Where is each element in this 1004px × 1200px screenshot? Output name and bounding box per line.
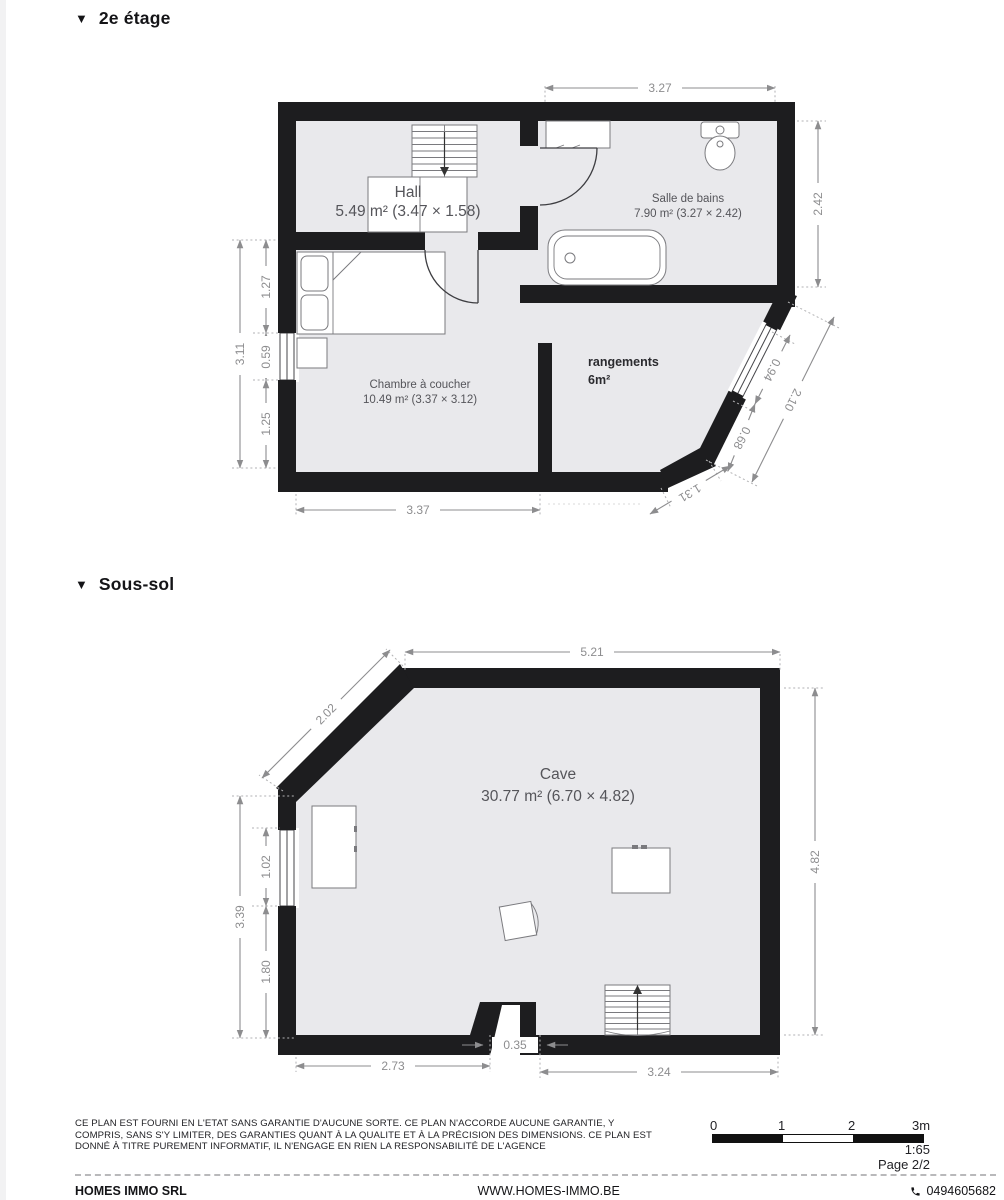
nightstand-icon: [297, 338, 327, 368]
disclaimer-line: DONNÉ À TITRE PUREMENT INFORMATIF, IL N'…: [75, 1141, 685, 1153]
svg-text:rangements: rangements: [588, 355, 659, 369]
dimension-left-b: 1.80: [258, 906, 274, 1038]
scale-tick-1: 1: [778, 1118, 785, 1133]
floorplan-2e-etage: 3.27 2.42 3.11 1.27: [232, 80, 841, 518]
svg-text:1.02: 1.02: [259, 855, 273, 879]
svg-text:2.73: 2.73: [381, 1059, 405, 1073]
svg-text:Hall: Hall: [395, 184, 422, 201]
svg-text:5.21: 5.21: [580, 645, 604, 659]
scale-bar: 0 1 2 3m: [712, 1118, 930, 1143]
floorplan-page: ▼ 2e étage ▼ Sous-sol: [0, 0, 1004, 1200]
svg-text:3.11: 3.11: [233, 342, 247, 365]
svg-text:5.49 m² (3.47 × 1.58): 5.49 m² (3.47 × 1.58): [335, 203, 480, 220]
svg-text:6m²: 6m²: [588, 373, 610, 387]
dimension-left-a: 1.27: [258, 240, 274, 333]
floorplan-canvas: 3.27 2.42 3.11 1.27: [0, 0, 1004, 1200]
svg-text:1.80: 1.80: [259, 960, 273, 984]
svg-text:7.90 m² (3.27 × 2.42): 7.90 m² (3.27 × 2.42): [634, 208, 742, 220]
shelf-icon: [312, 806, 357, 888]
dimension-left-a: 1.02: [258, 828, 274, 906]
svg-text:10.49 m² (3.37 × 3.12): 10.49 m² (3.37 × 3.12): [363, 394, 477, 406]
dimension-top: 3.27: [545, 80, 775, 96]
disclaimer-line: CE PLAN EST FOURNI EN L'ETAT SANS GARANT…: [75, 1118, 685, 1130]
scale-tick-0: 0: [710, 1118, 717, 1133]
scale-segment-black: [853, 1135, 923, 1142]
phone-number[interactable]: 0494605682: [910, 1184, 996, 1198]
scale-segment-black: [713, 1135, 783, 1142]
svg-text:1.27: 1.27: [259, 275, 273, 299]
dimension-top: 5.21: [405, 644, 780, 660]
footer-row: HOMES IMMO SRL WWW.HOMES-IMMO.BE 0494605…: [75, 1184, 996, 1198]
footer-divider: [75, 1174, 996, 1176]
scale-ratio: 1:65: [712, 1142, 930, 1157]
washer-icon: [612, 845, 670, 893]
svg-text:3.39: 3.39: [233, 905, 247, 929]
dimension-right: 2.42: [810, 121, 826, 287]
dimension-right: 4.82: [807, 688, 823, 1035]
dimension-left-c: 1.25: [258, 380, 274, 468]
scale-tick-3m: 3m: [912, 1118, 930, 1133]
floorplan-sous-sol: 5.21 2.02 4.82 3.39: [232, 644, 824, 1080]
scale-tick-2: 2: [848, 1118, 855, 1133]
phone-icon: [910, 1186, 921, 1197]
website-link[interactable]: WWW.HOMES-IMMO.BE: [477, 1184, 619, 1198]
window-icon: [275, 828, 299, 908]
scale-meta: 1:65 Page 2/2: [712, 1142, 930, 1172]
disclaimer-text: CE PLAN EST FOURNI EN L'ETAT SANS GARANT…: [75, 1118, 685, 1153]
scale-tick-labels: 0 1 2 3m: [712, 1118, 930, 1132]
svg-text:3.24: 3.24: [647, 1065, 671, 1079]
svg-text:2.42: 2.42: [811, 192, 825, 216]
bathtub-icon: [548, 230, 666, 285]
dimension-left-total: 3.39: [232, 796, 248, 1038]
svg-text:3.27: 3.27: [648, 81, 672, 95]
svg-text:0.35: 0.35: [503, 1038, 527, 1052]
scale-segment-white: [783, 1135, 853, 1142]
sink-icon: [546, 121, 610, 148]
phone-number-text: 0494605682: [926, 1184, 996, 1198]
floor-area: [296, 688, 760, 1035]
svg-text:Cave: Cave: [540, 766, 576, 783]
dimension-bottom-a: 2.73: [296, 1058, 490, 1074]
company-name: HOMES IMMO SRL: [75, 1184, 187, 1198]
svg-text:4.82: 4.82: [808, 850, 822, 874]
page-indicator: Page 2/2: [712, 1157, 930, 1172]
dimension-left-b: 0.59: [258, 333, 274, 380]
svg-text:Salle de bains: Salle de bains: [652, 193, 724, 205]
disclaimer-line: COMPRIS, SANS S'Y LIMITER, DES GARANTIES…: [75, 1130, 685, 1142]
svg-text:30.77 m² (6.70 × 4.82): 30.77 m² (6.70 × 4.82): [481, 788, 635, 805]
dimension-bottom-b: 3.24: [540, 1064, 778, 1080]
svg-text:Chambre à coucher: Chambre à coucher: [370, 379, 471, 391]
dimension-bottom: 3.37: [296, 502, 540, 518]
svg-text:1.25: 1.25: [259, 412, 273, 436]
window-icon: [275, 331, 299, 382]
stairs-icon: [605, 985, 670, 1036]
svg-text:0.59: 0.59: [259, 345, 273, 369]
svg-text:3.37: 3.37: [406, 503, 430, 517]
dimension-left-total: 3.11: [232, 240, 248, 468]
bed-icon: [297, 252, 445, 334]
